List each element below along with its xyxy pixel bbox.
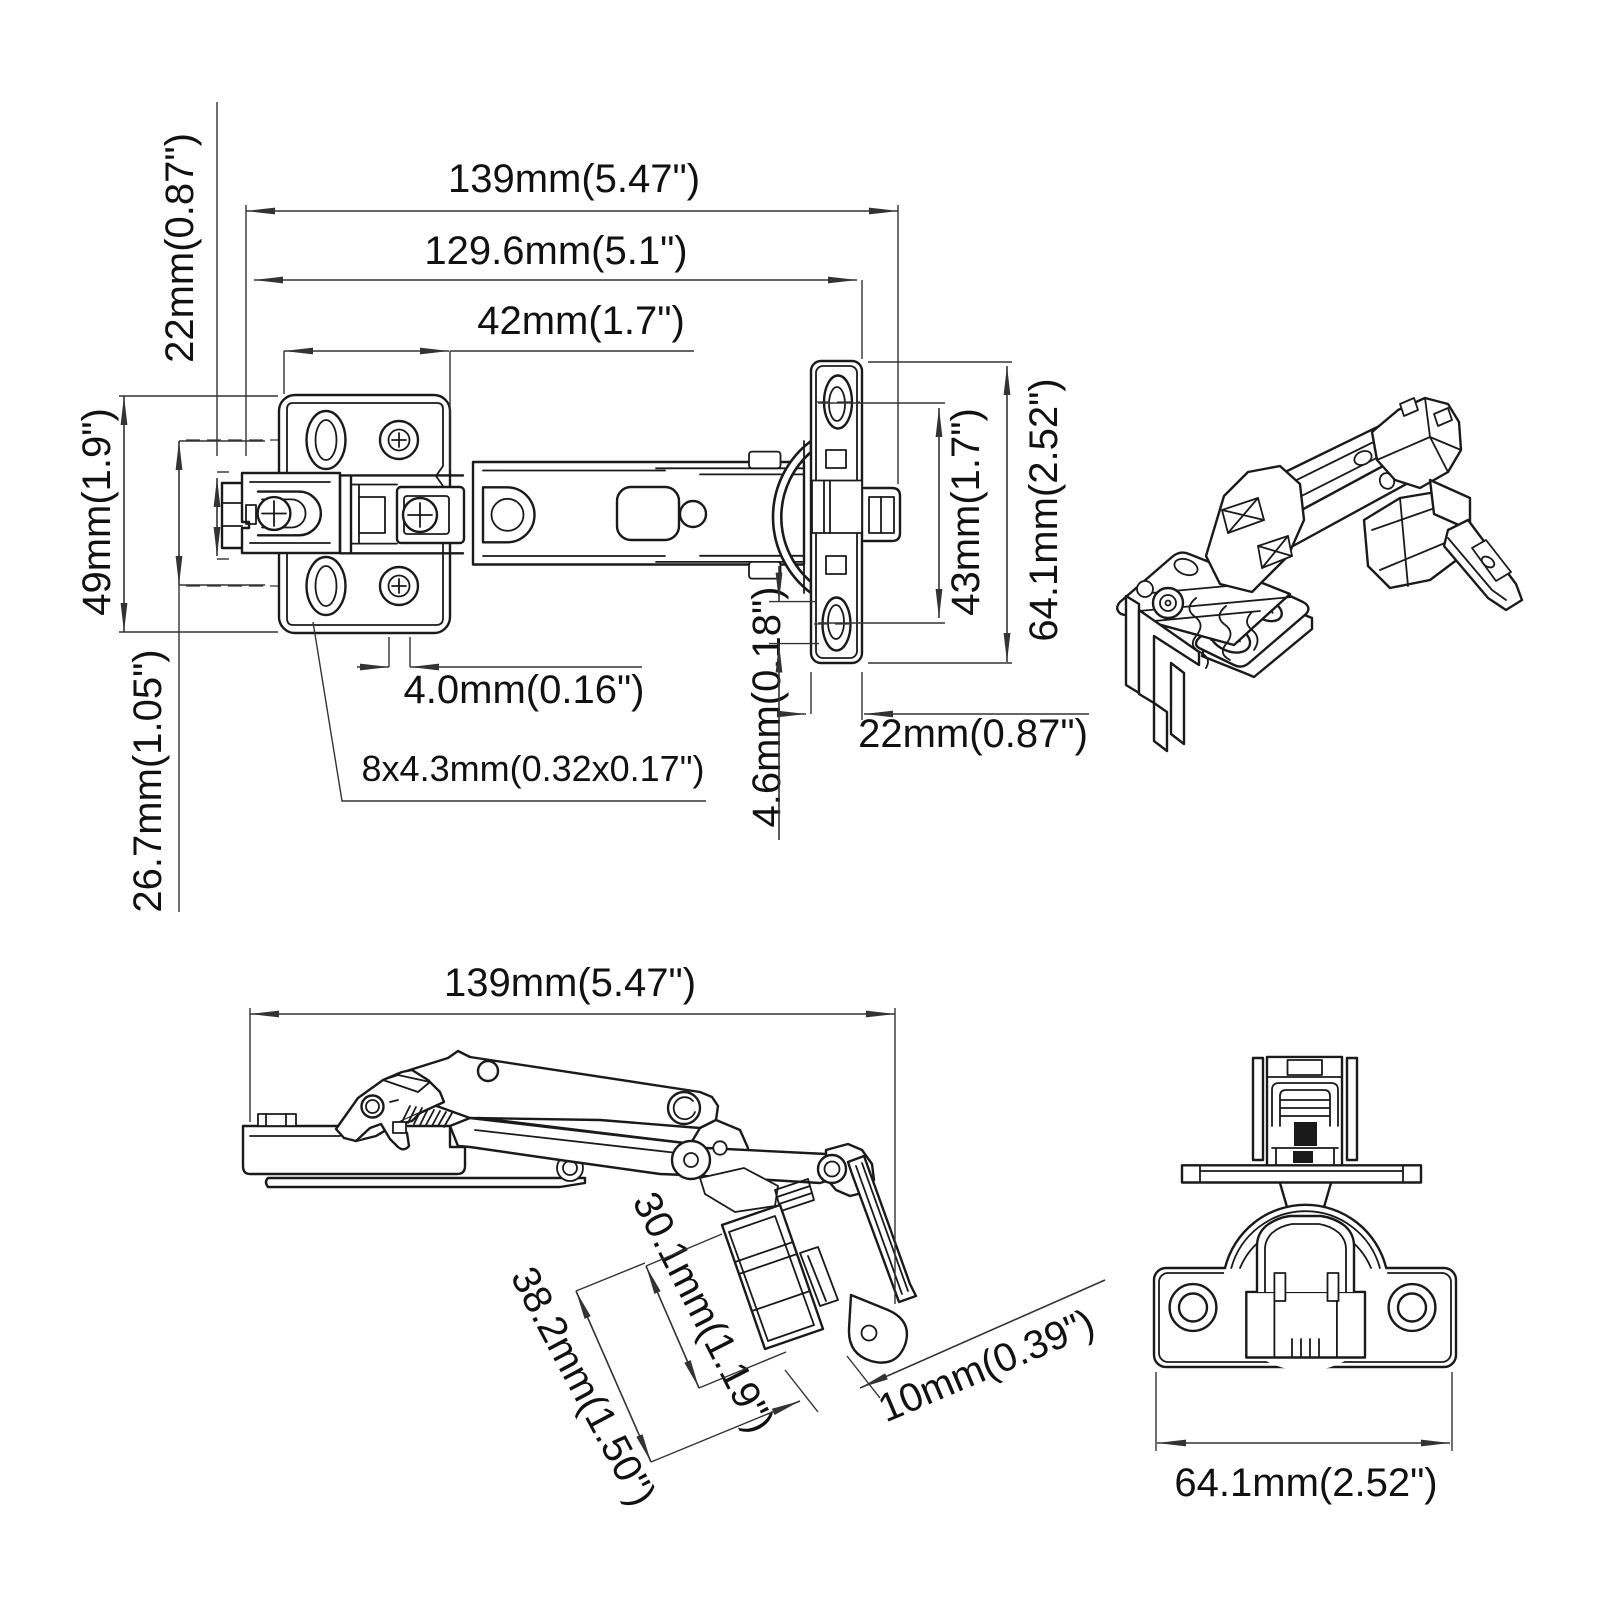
svg-text:139mm(5.47"): 139mm(5.47") bbox=[448, 157, 700, 201]
svg-text:64.1mm(2.52"): 64.1mm(2.52") bbox=[1022, 378, 1066, 641]
svg-text:8x4.3mm(0.32x0.17"): 8x4.3mm(0.32x0.17") bbox=[362, 748, 705, 789]
svg-text:22mm(0.87"): 22mm(0.87") bbox=[158, 133, 202, 363]
svg-text:42mm(1.7"): 42mm(1.7") bbox=[477, 299, 685, 343]
svg-text:139mm(5.47"): 139mm(5.47") bbox=[444, 961, 696, 1005]
svg-text:129.6mm(5.1"): 129.6mm(5.1") bbox=[424, 229, 687, 273]
svg-text:64.1mm(2.52"): 64.1mm(2.52") bbox=[1174, 1461, 1437, 1505]
svg-text:43mm(1.7"): 43mm(1.7") bbox=[944, 408, 988, 616]
svg-text:4.0mm(0.16"): 4.0mm(0.16") bbox=[404, 668, 645, 712]
svg-text:49mm(1.9"): 49mm(1.9") bbox=[75, 408, 119, 616]
svg-text:22mm(0.87"): 22mm(0.87") bbox=[858, 712, 1088, 756]
svg-text:4.6mm(0.18"): 4.6mm(0.18") bbox=[745, 587, 789, 828]
svg-text:26.7mm(1.05"): 26.7mm(1.05") bbox=[126, 649, 170, 912]
